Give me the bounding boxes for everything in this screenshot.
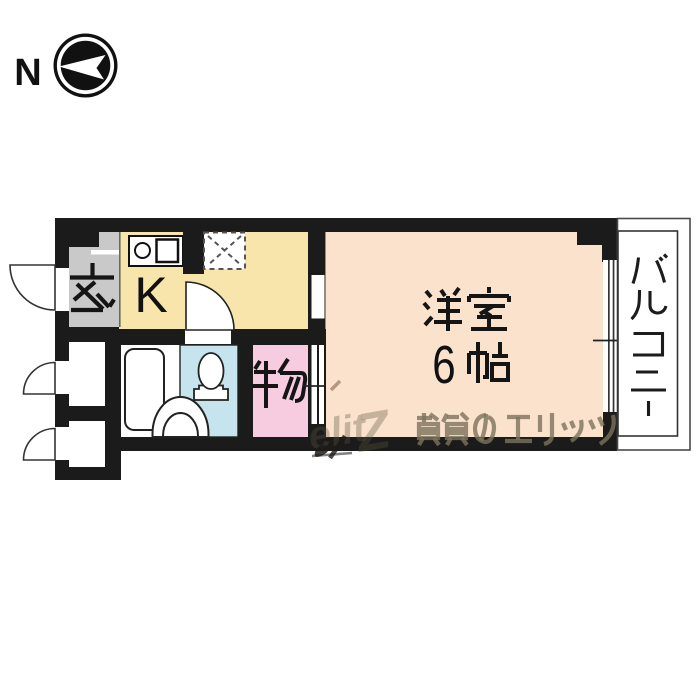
svg-text:K: K <box>134 267 167 323</box>
svg-text:N: N <box>14 52 41 94</box>
svg-text:6: 6 <box>432 335 455 395</box>
